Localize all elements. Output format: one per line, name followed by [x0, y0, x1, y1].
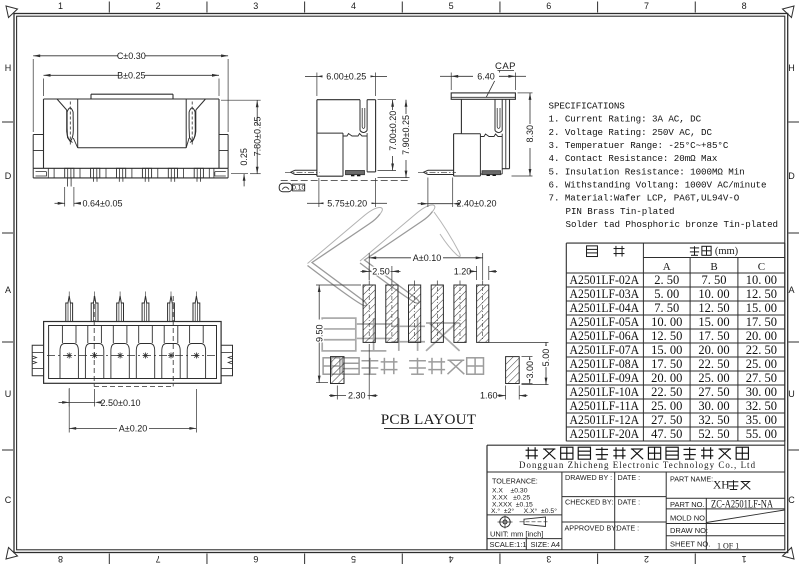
- svg-text:DRAWED BY :: DRAWED BY :: [565, 473, 612, 482]
- svg-text:12. 50: 12. 50: [746, 287, 777, 301]
- svg-text:D: D: [788, 171, 795, 181]
- svg-text:UNIT: mm [inch]: UNIT: mm [inch]: [490, 530, 543, 539]
- svg-text:PIN Brass Tin-plated: PIN Brass Tin-plated: [566, 206, 675, 217]
- svg-text:1. Current Rating: 3A AC, DC: 1. Current Rating: 3A AC, DC: [549, 114, 702, 125]
- svg-text:2.50±0.10: 2.50±0.10: [101, 398, 141, 408]
- svg-text:A2501LF-20A: A2501LF-20A: [570, 427, 640, 441]
- svg-text:Solder tad Phosphoric bronze T: Solder tad Phosphoric bronze Tin-plated: [566, 219, 779, 230]
- svg-text:3. Temperatuer Range: -25°C~+8: 3. Temperatuer Range: -25°C~+85°C: [549, 140, 729, 151]
- svg-text:8: 8: [742, 1, 747, 11]
- svg-text:B: B: [710, 261, 717, 273]
- svg-text:6: 6: [253, 554, 258, 564]
- svg-text:0.25: 0.25: [239, 148, 249, 166]
- svg-text:4: 4: [351, 1, 356, 11]
- svg-text:CHECKED BY:: CHECKED BY:: [565, 498, 613, 507]
- svg-text:0.10: 0.10: [292, 185, 305, 192]
- svg-text:A±0.20: A±0.20: [119, 424, 147, 434]
- svg-text:A2501LF-11A: A2501LF-11A: [570, 399, 640, 413]
- svg-text:5.75±0.20: 5.75±0.20: [327, 198, 367, 208]
- svg-text:C: C: [5, 495, 12, 505]
- svg-text:DRAW NO:: DRAW NO:: [670, 526, 708, 535]
- svg-text:0.64±0.05: 0.64±0.05: [83, 198, 123, 208]
- svg-text:15. 00: 15. 00: [746, 301, 777, 315]
- svg-text:H: H: [5, 63, 12, 73]
- svg-text:6. Withstanding Voltang: 1000V: 6. Withstanding Voltang: 1000V AC/minute: [549, 180, 767, 191]
- svg-text:C: C: [758, 261, 765, 273]
- svg-text:U: U: [788, 389, 795, 399]
- svg-text:DATE :: DATE :: [617, 524, 640, 533]
- svg-text:PART NAME:: PART NAME:: [670, 475, 713, 484]
- svg-text:7.80±0.25: 7.80±0.25: [252, 116, 262, 156]
- svg-text:3.00: 3.00: [525, 361, 535, 379]
- svg-text:22. 50: 22. 50: [651, 385, 682, 399]
- svg-text:7. 50: 7. 50: [702, 273, 727, 287]
- svg-text:4. Contact Resistance: 20mΩ Ma: 4. Contact Resistance: 20mΩ Max: [549, 153, 718, 164]
- svg-text:30. 00: 30. 00: [746, 385, 777, 399]
- svg-text:U: U: [5, 389, 12, 399]
- svg-text:2. Voltage Rating: 250V AC, DC: 2. Voltage Rating: 250V AC, DC: [549, 127, 713, 138]
- svg-text:10. 00: 10. 00: [651, 315, 682, 329]
- svg-text:MOLD NO.: MOLD NO.: [670, 514, 707, 523]
- svg-text:27. 50: 27. 50: [651, 413, 682, 427]
- svg-text:SCALE:1:1: SCALE:1:1: [490, 540, 527, 549]
- svg-text:6.40: 6.40: [477, 71, 495, 81]
- svg-text:10. 00: 10. 00: [698, 287, 729, 301]
- svg-text:Dongguan Zhicheng Electronic: Dongguan Zhicheng Electronic Technology …: [519, 460, 756, 470]
- svg-text:C: C: [788, 495, 795, 505]
- svg-text:B±0.25: B±0.25: [117, 70, 145, 80]
- svg-text:3: 3: [546, 554, 551, 564]
- svg-text:20. 00: 20. 00: [698, 343, 729, 357]
- svg-text:2: 2: [644, 554, 649, 564]
- svg-text:A2501LF-10A: A2501LF-10A: [570, 385, 640, 399]
- svg-text:7.90±0.25: 7.90±0.25: [401, 115, 411, 155]
- svg-text:1.20: 1.20: [454, 266, 472, 276]
- svg-text:6.00±0.25: 6.00±0.25: [326, 71, 366, 81]
- svg-text:27. 50: 27. 50: [746, 371, 777, 385]
- svg-text:17. 50: 17. 50: [651, 357, 682, 371]
- svg-text:8: 8: [58, 554, 63, 564]
- svg-text:2. 50: 2. 50: [654, 273, 679, 287]
- svg-text:TOLERANCE:: TOLERANCE:: [492, 477, 538, 486]
- svg-text:SHEET NO.: SHEET NO.: [670, 539, 710, 548]
- svg-text:D: D: [5, 171, 12, 181]
- svg-text:A2501LF-08A: A2501LF-08A: [570, 357, 640, 371]
- svg-text:SPECIFICATIONS: SPECIFICATIONS: [549, 101, 626, 112]
- svg-text:A2501LF-04A: A2501LF-04A: [570, 301, 640, 315]
- svg-text:8.30: 8.30: [525, 125, 535, 143]
- svg-text:25. 00: 25. 00: [698, 371, 729, 385]
- svg-text:X.X ±0.30: X.X ±0.30: [492, 488, 528, 495]
- svg-text:22. 50: 22. 50: [746, 343, 777, 357]
- svg-text:2.50: 2.50: [372, 266, 390, 276]
- svg-text:A2501LF-07A: A2501LF-07A: [570, 343, 640, 357]
- svg-text:30. 00: 30. 00: [698, 399, 729, 413]
- svg-text:A2501LF-06A: A2501LF-06A: [570, 329, 640, 343]
- svg-text:27. 50: 27. 50: [698, 385, 729, 399]
- svg-text:15. 00: 15. 00: [698, 315, 729, 329]
- svg-text:SIZE: A4: SIZE: A4: [531, 540, 561, 549]
- svg-text:5. Insulation Resistance: 1000: 5. Insulation Resistance: 1000MΩ Min: [549, 166, 745, 177]
- svg-text:32. 50: 32. 50: [746, 399, 777, 413]
- svg-text:35. 00: 35. 00: [746, 413, 777, 427]
- svg-text:7. Material:Wafer LCP, PA6T,UL: 7. Material:Wafer LCP, PA6T,UL94V-O: [549, 193, 740, 204]
- svg-text:A2501LF-02A: A2501LF-02A: [570, 273, 640, 287]
- svg-text:2: 2: [156, 1, 161, 11]
- svg-text:XH: XH: [713, 480, 730, 492]
- svg-text:A2501LF-12A: A2501LF-12A: [570, 413, 640, 427]
- svg-text:APPROVED BY:: APPROVED BY:: [565, 524, 618, 533]
- svg-text:22. 50: 22. 50: [698, 357, 729, 371]
- svg-text:ZC-A2501LF-NA: ZC-A2501LF-NA: [711, 496, 773, 510]
- svg-text:3: 3: [253, 1, 258, 11]
- svg-text:5.00: 5.00: [541, 349, 551, 367]
- svg-text:25. 00: 25. 00: [651, 399, 682, 413]
- svg-text:6: 6: [546, 1, 551, 11]
- svg-text:X.° ±2° X.X° ±0.5°: X.° ±2° X.X° ±0.5°: [491, 507, 557, 515]
- svg-text:A: A: [788, 285, 794, 295]
- svg-text:20. 00: 20. 00: [651, 371, 682, 385]
- svg-text:5: 5: [449, 1, 454, 11]
- svg-text:C±0.30: C±0.30: [117, 51, 146, 61]
- svg-text:7: 7: [156, 554, 161, 564]
- svg-text:55. 00: 55. 00: [746, 427, 777, 441]
- svg-text:1 OF 1: 1 OF 1: [717, 541, 739, 550]
- svg-text:A2501LF-05A: A2501LF-05A: [570, 315, 640, 329]
- svg-text:9.50: 9.50: [315, 324, 325, 342]
- svg-text:7: 7: [644, 1, 649, 11]
- svg-text:A: A: [5, 285, 11, 295]
- svg-text:25. 00: 25. 00: [746, 357, 777, 371]
- svg-text:7.00±0.20: 7.00±0.20: [388, 111, 398, 151]
- svg-text:17. 50: 17. 50: [746, 315, 777, 329]
- svg-text:7. 50: 7. 50: [654, 301, 679, 315]
- svg-text:1: 1: [58, 1, 63, 11]
- svg-text:47. 50: 47. 50: [651, 427, 682, 441]
- svg-text:1: 1: [742, 554, 747, 564]
- svg-text:A±0.10: A±0.10: [413, 253, 441, 263]
- svg-text:12. 50: 12. 50: [698, 301, 729, 315]
- svg-text:(mm): (mm): [715, 246, 739, 257]
- svg-text:2.30: 2.30: [348, 391, 366, 401]
- svg-text:12. 50: 12. 50: [651, 329, 682, 343]
- svg-text:5. 00: 5. 00: [654, 287, 679, 301]
- svg-text:17. 50: 17. 50: [698, 329, 729, 343]
- svg-text:1.60: 1.60: [480, 391, 498, 401]
- svg-text:52. 50: 52. 50: [698, 427, 729, 441]
- svg-text:A: A: [663, 261, 671, 273]
- svg-text:DATE :: DATE :: [618, 473, 641, 482]
- svg-text:A2501LF-03A: A2501LF-03A: [570, 287, 640, 301]
- svg-text:PART NO.: PART NO.: [670, 500, 705, 509]
- svg-text:20. 00: 20. 00: [746, 329, 777, 343]
- svg-text:DATE :: DATE :: [618, 498, 641, 507]
- svg-text:32. 50: 32. 50: [698, 413, 729, 427]
- svg-text:4: 4: [449, 554, 454, 564]
- svg-text:5: 5: [351, 554, 356, 564]
- svg-text:10. 00: 10. 00: [746, 273, 777, 287]
- svg-text:H: H: [788, 63, 795, 73]
- svg-text:15. 00: 15. 00: [651, 343, 682, 357]
- svg-text:A2501LF-09A: A2501LF-09A: [570, 371, 640, 385]
- svg-text:2.40±0.20: 2.40±0.20: [457, 199, 497, 209]
- svg-text:PCB LAYOUT: PCB LAYOUT: [381, 411, 477, 428]
